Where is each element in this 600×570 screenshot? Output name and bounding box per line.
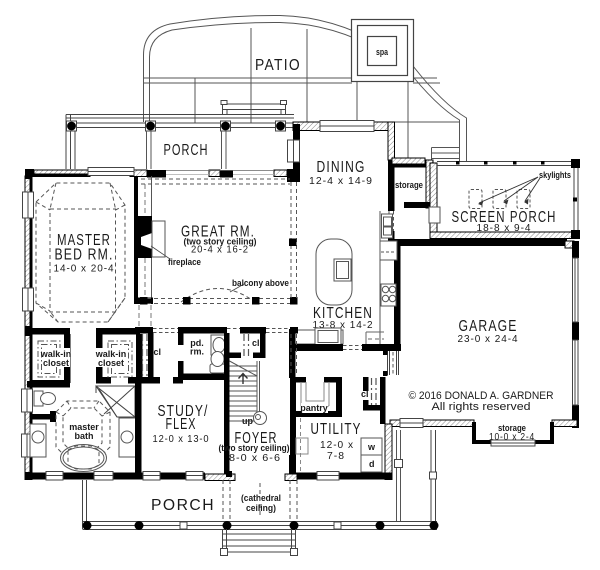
svg-text:12-0 x 13-0: 12-0 x 13-0 <box>153 433 210 445</box>
svg-text:FLEX: FLEX <box>166 416 197 433</box>
svg-text:pantry: pantry <box>300 403 328 413</box>
svg-text:7-8: 7-8 <box>327 450 345 462</box>
svg-text:cl: cl <box>252 338 260 348</box>
svg-text:w: w <box>367 442 376 452</box>
svg-text:balcony above: balcony above <box>232 278 289 288</box>
svg-text:10-0 x 2-4: 10-0 x 2-4 <box>489 431 535 443</box>
svg-text:12-4 x 14-9: 12-4 x 14-9 <box>309 175 373 187</box>
svg-text:PORCH: PORCH <box>164 142 209 159</box>
svg-text:UTILITY: UTILITY <box>311 421 362 438</box>
svg-text:14-0 x 20-4: 14-0 x 20-4 <box>54 263 115 275</box>
svg-text:up: up <box>242 416 253 426</box>
svg-text:spa: spa <box>376 47 389 57</box>
svg-text:All rights reserved: All rights reserved <box>432 401 531 413</box>
svg-text:skylights: skylights <box>539 170 571 180</box>
svg-text:bath: bath <box>75 431 94 441</box>
svg-text:PATIO: PATIO <box>255 57 301 74</box>
svg-text:storage: storage <box>395 180 423 190</box>
svg-text:ceiling): ceiling) <box>246 503 276 513</box>
svg-text:cl: cl <box>154 347 162 357</box>
svg-text:rm.: rm. <box>190 347 204 357</box>
svg-text:fireplace: fireplace <box>168 257 201 267</box>
svg-text:PORCH: PORCH <box>151 497 215 514</box>
svg-text:23-0 x 24-4: 23-0 x 24-4 <box>458 333 519 345</box>
svg-text:BED RM.: BED RM. <box>55 247 114 264</box>
svg-text:d: d <box>369 459 375 469</box>
svg-text:DINING: DINING <box>317 159 366 176</box>
svg-text:closet: closet <box>43 358 69 368</box>
svg-text:cl: cl <box>361 389 369 399</box>
svg-text:20-4 x 16-2: 20-4 x 16-2 <box>191 244 249 256</box>
svg-text:closet: closet <box>98 358 124 368</box>
svg-text:(cathedral: (cathedral <box>241 493 281 503</box>
svg-text:8-0 x 6-6: 8-0 x 6-6 <box>229 452 281 464</box>
svg-text:18-8 x 9-4: 18-8 x 9-4 <box>477 222 532 234</box>
